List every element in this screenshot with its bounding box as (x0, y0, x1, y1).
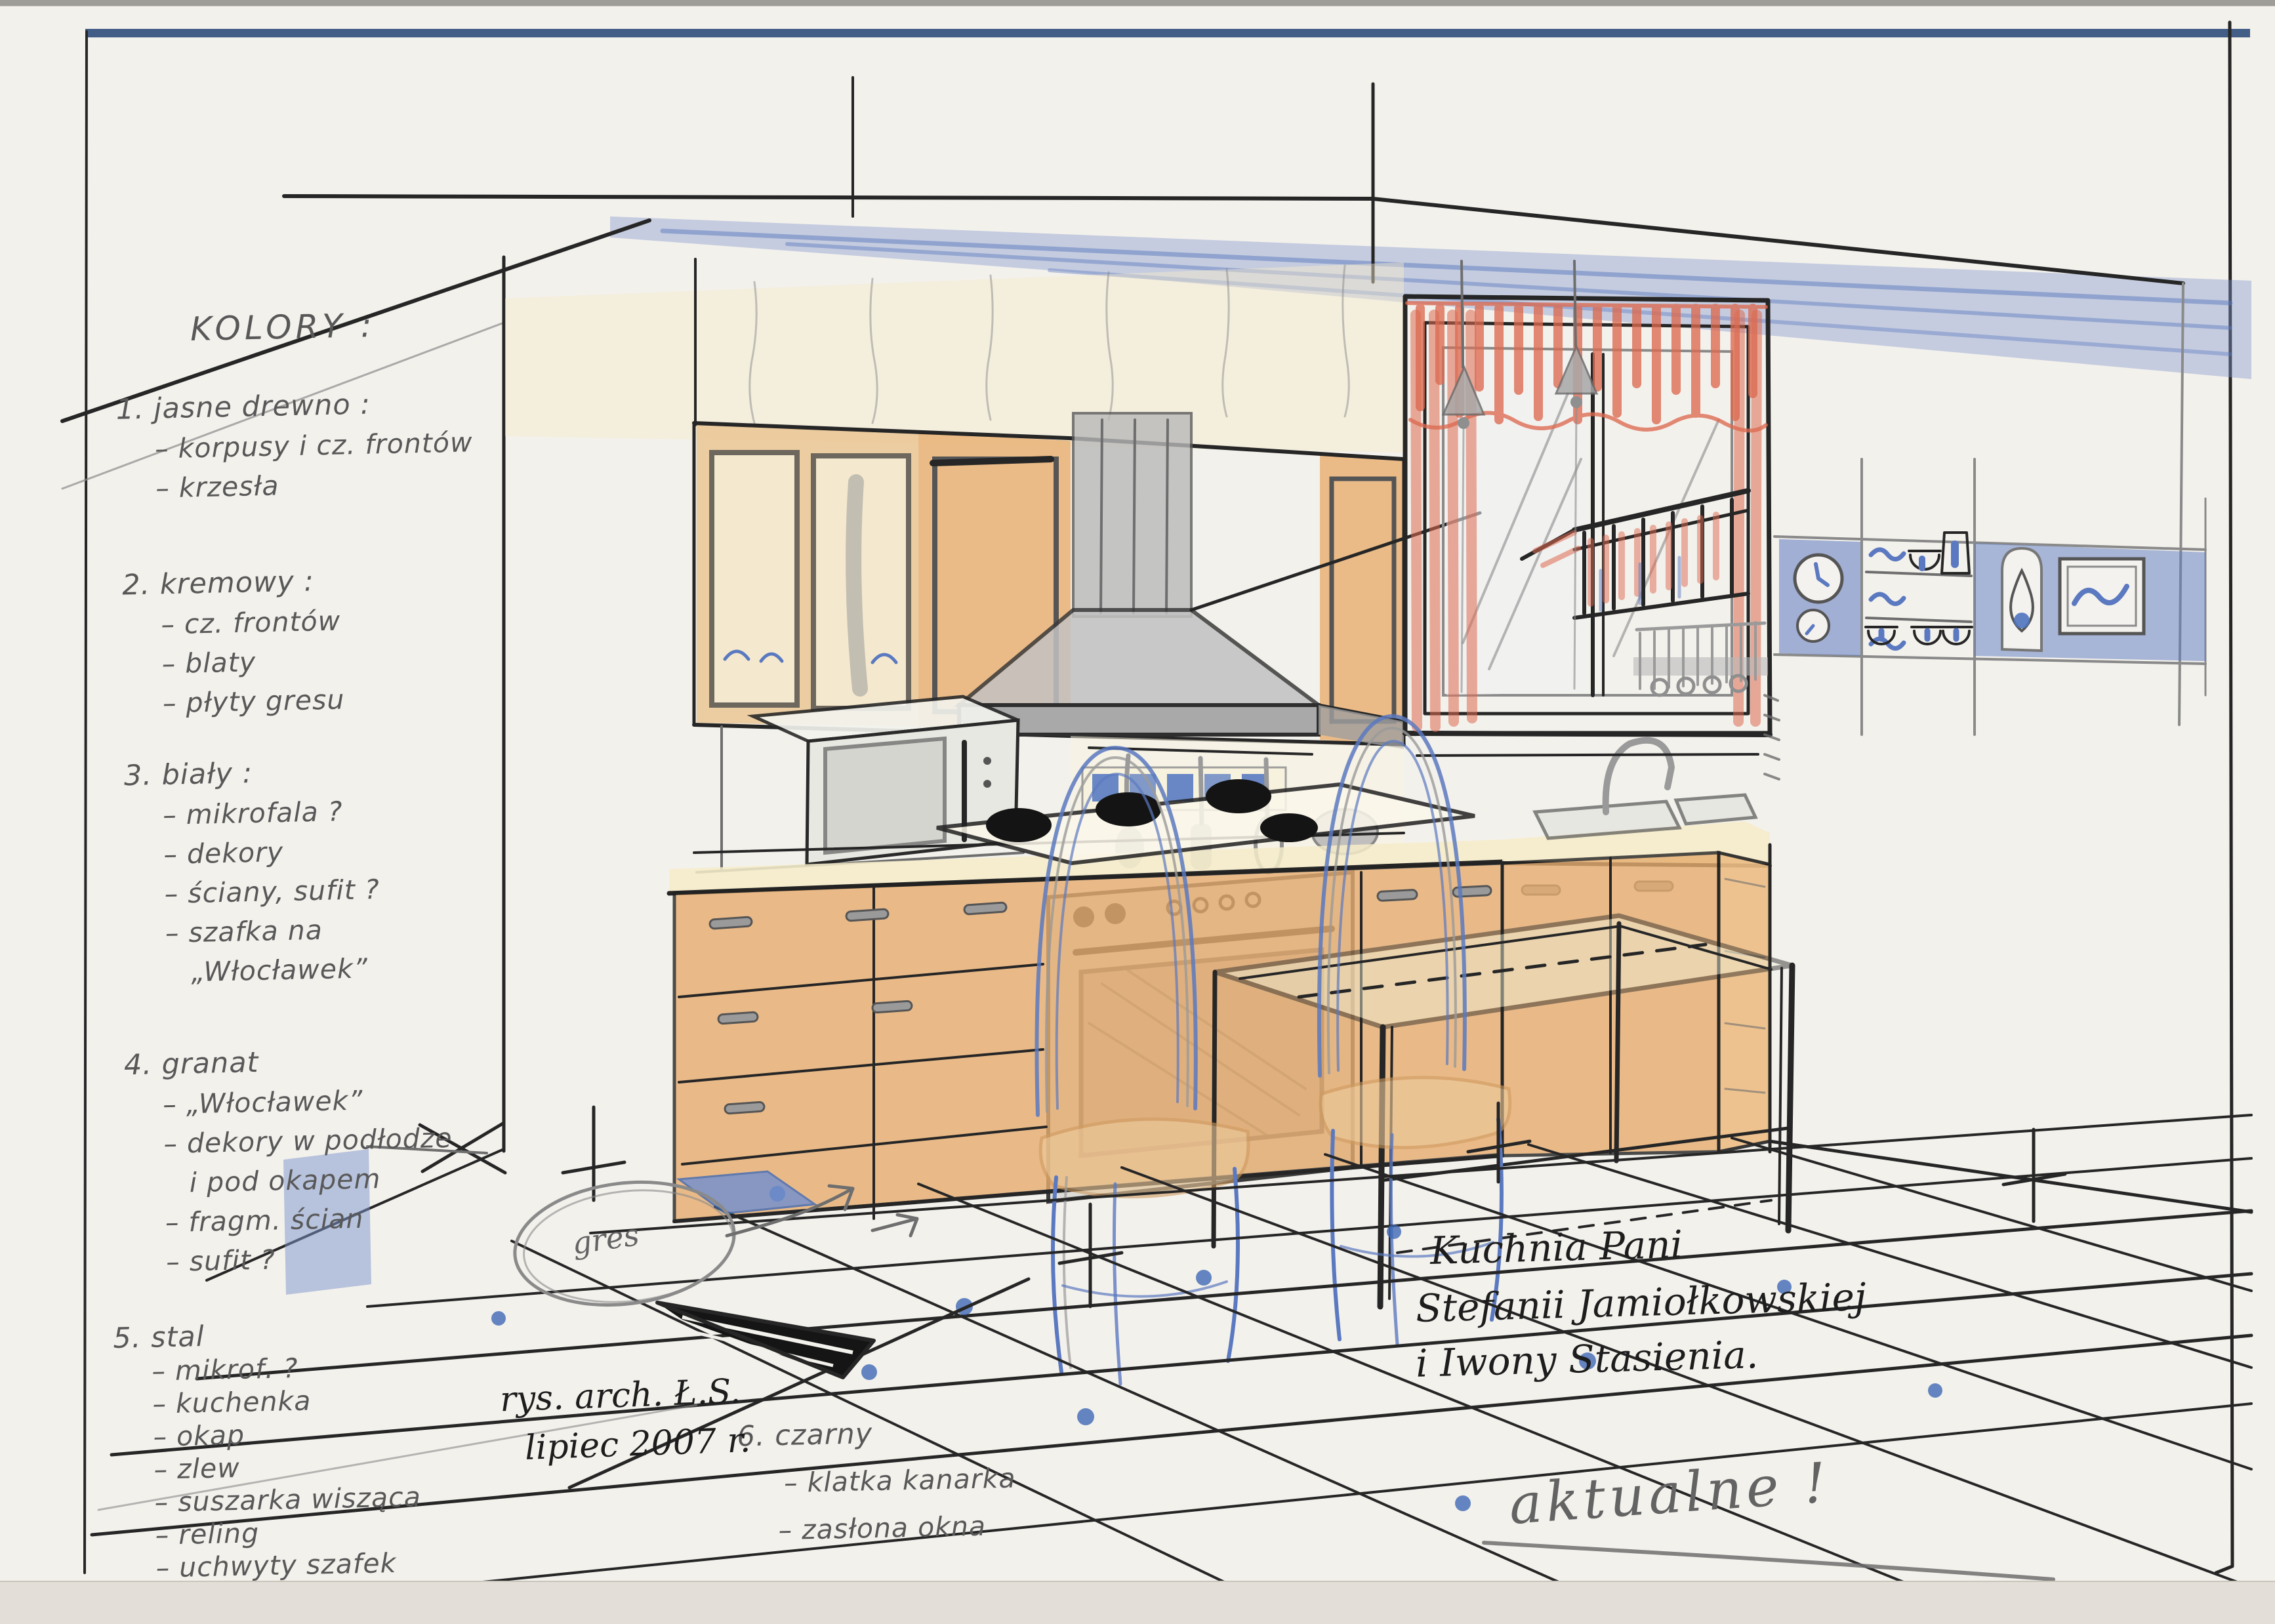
window (1405, 296, 1779, 779)
architect-signature: rys. arch. Ł.S. (499, 1372, 741, 1420)
scanned-sketch-page: KOLORY : 1. jasne drewno : – korpusy i c… (0, 0, 2275, 1624)
note-item-6: 6. czarny – klatka kanarka – zasłona okn… (737, 1408, 1017, 1555)
project-title-line1: Kuchnia Pani (1429, 1222, 1683, 1273)
signature-date: lipiec 2007 r. (524, 1421, 751, 1468)
note-item-4: 4. granat – „Włocławek” – dekory w podło… (123, 1038, 455, 1282)
status-underline (1484, 1543, 2053, 1579)
scan-edge-bottom (0, 1581, 2275, 1624)
project-title-line3: i Iwony Stasienia. (1415, 1332, 1759, 1386)
wall-frieze (1774, 459, 2205, 735)
note-item-3: 3. biały : – mikrofala ? – dekory – ścia… (123, 750, 382, 993)
note-head: 1. jasne drewno : (115, 382, 472, 430)
note-item-1: 1. jasne drewno : – korpusy i cz. frontó… (115, 382, 474, 508)
note-item-2: 2. kremowy : – cz. frontów – blaty – pły… (122, 561, 345, 724)
notes-title: KOLORY : (190, 306, 376, 348)
note-item-5: 5. stal – mikrof. ? – kuchenka – okap – … (113, 1315, 423, 1585)
frieze-shelves (1866, 533, 1972, 649)
